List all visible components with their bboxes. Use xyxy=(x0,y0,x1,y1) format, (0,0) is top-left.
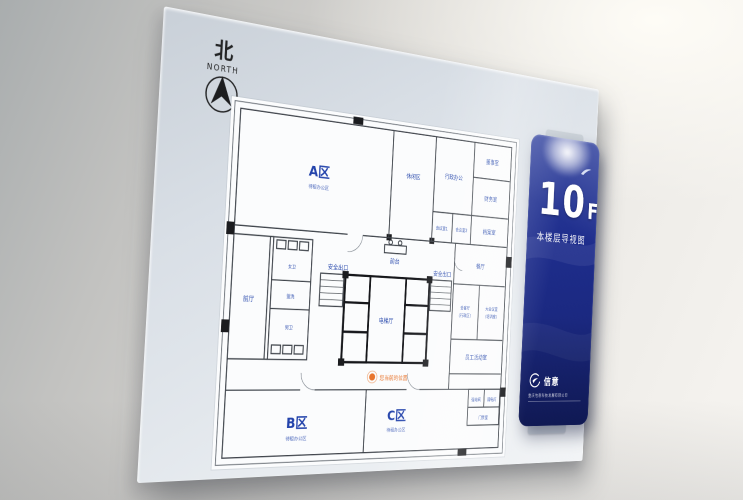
room-mens: 男卫 xyxy=(285,325,293,331)
restrooms: 女卫 盥洗 男卫 xyxy=(267,237,313,360)
right-rooms: 餐厅 会客厅 (行政区) 大会议室 (培训室) 员工活动室 xyxy=(448,243,506,389)
sign-board: 北 NORTH xyxy=(137,6,599,483)
exit-left-label: 安全出口 xyxy=(328,262,349,272)
plan-inner-border xyxy=(222,108,512,458)
room-meeting2: 会议室2 xyxy=(455,227,467,234)
brand-swoosh-icon xyxy=(580,166,592,178)
floor-number: 10 xyxy=(537,176,587,226)
floor-letter: F xyxy=(587,198,599,225)
room-archive: 档案室 xyxy=(483,228,496,237)
you-are-here-label: 您当前的位置 xyxy=(379,373,407,381)
lobby-room: 前厅 xyxy=(227,234,274,360)
floor-plan-paper: A区 待租办公区 休闲区 行政办公 董事室 财务室 会议室1 会议室2 档案室 … xyxy=(211,96,519,470)
photo-stage: 北 NORTH xyxy=(0,0,743,500)
banner-brand-block: 信意 重庆信意科技发展有限公司 xyxy=(528,373,582,402)
brand-name: 信意 xyxy=(544,374,560,388)
room-activity: 员工活动室 xyxy=(465,353,487,361)
reception-desk: 前台 xyxy=(384,240,407,266)
room-power-strong: 强电间 xyxy=(471,397,481,403)
room-dining: 餐厅 xyxy=(476,262,485,270)
room-elevator-hall: 电梯厅 xyxy=(379,316,394,325)
utility-rooms: 强电间 弱电间 门禁室 xyxy=(467,389,500,425)
current-location-marker: 您当前的位置 xyxy=(367,371,408,383)
floor-plan-drawing: A区 待租办公区 休闲区 行政办公 董事室 财务室 会议室1 会议室2 档案室 … xyxy=(211,96,519,470)
room-meeting1: 会议室1 xyxy=(436,225,448,232)
room-director: 董事室 xyxy=(486,157,499,166)
bottom-walls xyxy=(222,389,500,458)
north-label: NORTH xyxy=(207,61,240,76)
room-admin-office: 行政办公 xyxy=(445,172,464,182)
room-training2: (培训室) xyxy=(485,314,497,320)
floor-banner: 10 F 本楼层导视图 信意 重庆信意科技发展有限公司 xyxy=(518,133,600,426)
stairs-left xyxy=(319,273,344,307)
room-guest2: (行政区) xyxy=(459,313,471,320)
room-guest1: 会客厅 xyxy=(460,305,470,312)
floor-number-row: 10 F xyxy=(537,176,599,227)
zone-c-label: C区 xyxy=(387,408,407,424)
zone-a-subtitle: 待租办公区 xyxy=(308,182,329,192)
room-reception: 前台 xyxy=(390,257,400,266)
room-power-weak: 弱电间 xyxy=(487,397,497,403)
zone-b-label: B区 xyxy=(286,415,308,432)
room-lobby: 前厅 xyxy=(243,294,255,303)
room-womens: 女卫 xyxy=(288,263,296,270)
exit-right-label: 安全出口 xyxy=(433,269,451,278)
room-leisure: 休闲区 xyxy=(406,171,421,181)
stairs-right xyxy=(430,280,452,312)
brand-logo-icon xyxy=(528,373,541,389)
room-access: 门禁室 xyxy=(478,415,488,421)
company-name-line: 重庆信意科技发展有限公司 xyxy=(528,393,581,402)
top-walls xyxy=(234,108,511,247)
room-washroom: 盥洗 xyxy=(286,293,294,300)
zone-a-label: A区 xyxy=(309,163,331,181)
zone-b-subtitle: 待租办公区 xyxy=(285,434,306,442)
zone-c-subtitle: 待租办公区 xyxy=(386,426,405,434)
elevator-core: 电梯厅 xyxy=(338,271,433,367)
room-finance: 财务室 xyxy=(484,195,497,204)
room-training1: 大会议室 xyxy=(485,306,498,313)
sign-board-scene: 北 NORTH xyxy=(137,6,614,483)
north-char: 北 xyxy=(214,38,235,66)
plan-outer-border xyxy=(215,101,516,466)
